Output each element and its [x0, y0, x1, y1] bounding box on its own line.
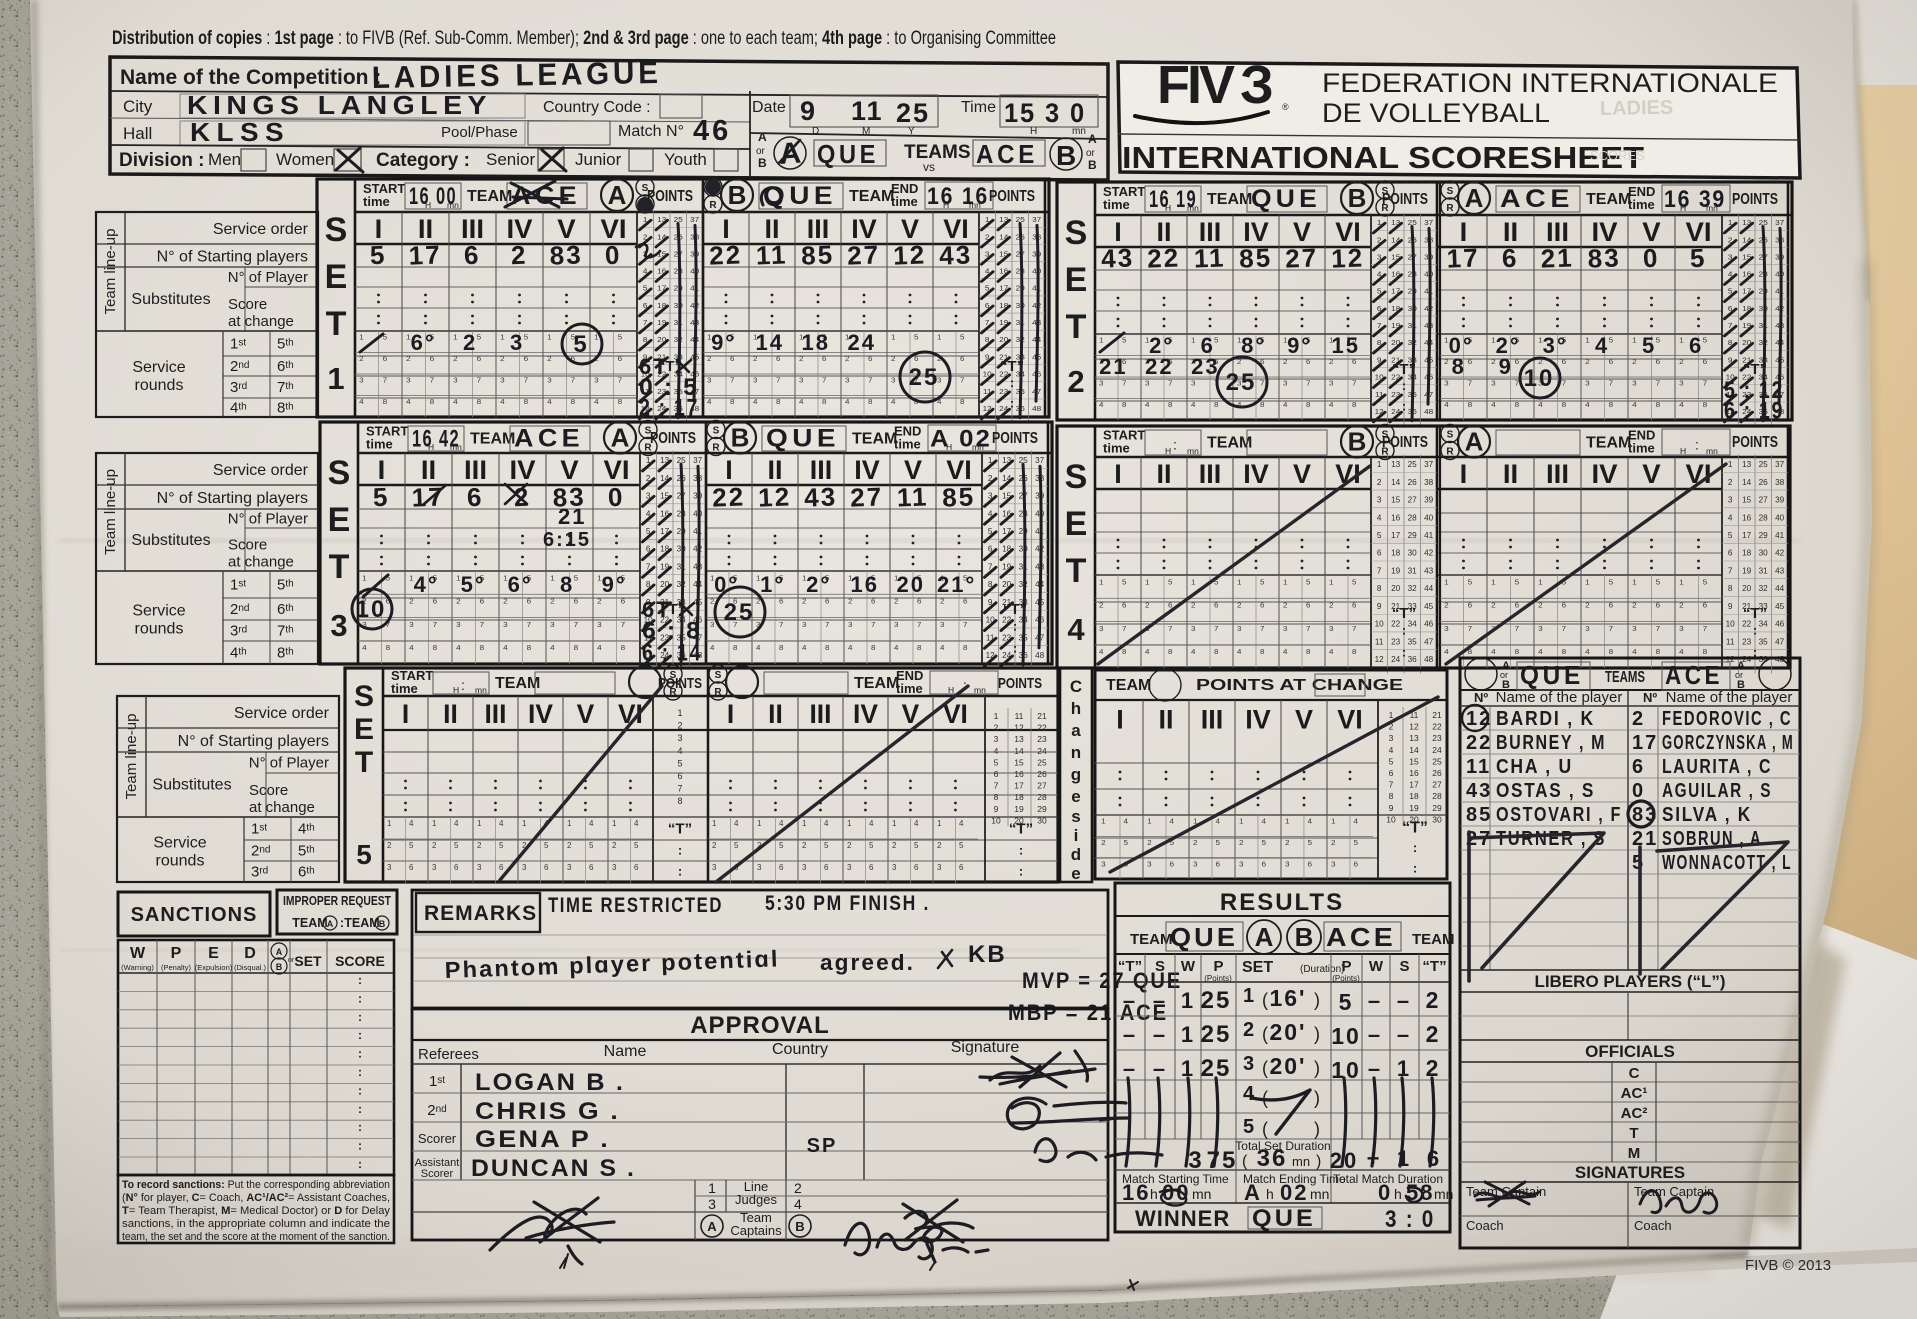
svg-text::: :: [678, 843, 682, 858]
svg-text:“T”: “T”: [1118, 958, 1142, 975]
svg-text:10: 10: [1331, 1057, 1361, 1083]
svg-text:2: 2: [794, 1180, 802, 1196]
svg-text:QUE: QUE: [817, 139, 879, 169]
svg-text:N° of Starting players: N° of Starting players: [157, 249, 308, 266]
svg-text:10: 10: [1331, 1023, 1361, 1049]
svg-text:SCORES: SCORES: [1590, 148, 1645, 163]
svg-text:7: 7: [677, 784, 682, 794]
svg-text:6: 6: [1501, 243, 1519, 274]
svg-text:Service order: Service order: [213, 462, 309, 479]
svg-text:A: A: [327, 919, 334, 929]
svg-text:®: ®: [1282, 102, 1289, 112]
svg-text:–: –: [1397, 988, 1411, 1013]
svg-text:3: 3: [510, 330, 524, 355]
svg-text:–: –: [1397, 1022, 1411, 1047]
svg-text:43: 43: [1101, 242, 1135, 273]
svg-text:85: 85: [942, 481, 976, 512]
svg-text:Women: Women: [276, 150, 334, 169]
svg-text:R: R: [712, 443, 720, 454]
svg-text::: :: [678, 864, 682, 879]
svg-text:RESULTS: RESULTS: [1220, 889, 1344, 916]
svg-text:(Disqual.): (Disqual.): [234, 963, 267, 972]
svg-text:H: H: [1165, 446, 1171, 456]
svg-text:SCORE: SCORE: [335, 953, 385, 969]
svg-text:20': 20': [1269, 1019, 1306, 1045]
svg-text:TEAM: TEAM: [852, 431, 897, 448]
svg-text:mn: mn: [1706, 446, 1718, 456]
svg-text:8: 8: [560, 572, 574, 597]
svg-text:1: 1: [1397, 1146, 1411, 1171]
svg-text:Judges: Judges: [735, 1192, 777, 1207]
svg-text:3: 3: [708, 1196, 716, 1212]
svg-text:–: –: [1123, 1022, 1137, 1047]
svg-text:0°: 0°: [714, 572, 739, 597]
svg-text:d: d: [1071, 845, 1081, 864]
svg-text:24: 24: [847, 330, 875, 355]
svg-text:“T”: “T”: [1743, 361, 1767, 378]
svg-text:4°: 4°: [414, 572, 439, 597]
svg-text:12: 12: [758, 481, 792, 512]
svg-text:–: –: [1368, 1022, 1382, 1047]
svg-text:Service: Service: [132, 603, 185, 620]
svg-text:2°: 2°: [806, 572, 831, 597]
svg-text:AC¹: AC¹: [1621, 1085, 1648, 1102]
svg-text:Signature: Signature: [951, 1039, 1020, 1056]
svg-text:25: 25: [909, 364, 940, 391]
svg-text:C: C: [1070, 677, 1082, 696]
svg-text::: :: [1402, 645, 1406, 660]
svg-text:W: W: [1369, 958, 1384, 975]
svg-text:Service: Service: [153, 835, 206, 852]
svg-text:2: 2: [677, 721, 682, 731]
svg-text:FEDERATION INTERNATIONALE: FEDERATION INTERNATIONALE: [1322, 68, 1778, 98]
svg-text:D: D: [244, 945, 256, 962]
svg-text:3°: 3°: [1543, 333, 1568, 358]
svg-text:17: 17: [408, 239, 442, 270]
svg-text:Coach: Coach: [1466, 1218, 1504, 1233]
svg-text:h: h: [1150, 1186, 1158, 1202]
svg-text::: :: [358, 1047, 362, 1061]
svg-text:S: S: [1447, 186, 1454, 197]
svg-text:T: T: [1629, 1125, 1638, 1142]
svg-text:22: 22: [1145, 354, 1173, 379]
svg-text:16 42: 16 42: [412, 426, 460, 453]
svg-text:Service order: Service order: [234, 705, 330, 722]
svg-text:Nº: Nº: [1474, 690, 1488, 705]
svg-text:n: n: [1071, 743, 1081, 762]
svg-text:2: 2: [1243, 1019, 1256, 1041]
svg-text:“T”: “T”: [1402, 820, 1428, 837]
svg-text:QUE: QUE: [1252, 1205, 1316, 1232]
svg-text:2: 2: [1067, 364, 1084, 399]
svg-text:20: 20: [1330, 1148, 1358, 1173]
svg-text:1°: 1°: [760, 572, 785, 597]
svg-text:S: S: [325, 211, 348, 249]
svg-text:WINNER: WINNER: [1135, 1206, 1230, 1231]
svg-text:g: g: [1071, 765, 1081, 784]
svg-text:R: R: [714, 687, 722, 698]
svg-text:21: 21: [1099, 354, 1127, 379]
svg-text:+: +: [1367, 1146, 1382, 1171]
svg-text:27: 27: [1285, 242, 1319, 273]
svg-text:(Expulsion): (Expulsion): [195, 963, 233, 972]
svg-text:mn: mn: [1192, 1186, 1211, 1202]
svg-text:E: E: [1065, 261, 1088, 299]
svg-text:APPROVAL: APPROVAL: [690, 1012, 830, 1039]
svg-text:h: h: [1394, 1186, 1402, 1202]
svg-text:POINTS: POINTS: [1732, 434, 1778, 451]
svg-text:6: 6: [1427, 1146, 1441, 1171]
svg-text:TEAM: TEAM: [1207, 191, 1252, 208]
svg-text:Men: Men: [208, 150, 241, 169]
svg-text:17: 17: [1632, 732, 1658, 754]
svg-text:S: S: [1065, 458, 1088, 496]
svg-text:6T: 6T: [639, 354, 669, 379]
svg-text:A: A: [1255, 922, 1274, 952]
svg-text:W: W: [130, 945, 146, 962]
svg-text:–: –: [1153, 1022, 1167, 1047]
svg-text:LAURITA , C: LAURITA , C: [1662, 756, 1772, 778]
svg-text:11: 11: [755, 239, 788, 270]
svg-text:B: B: [1348, 427, 1367, 457]
svg-text:6 : 14: 6 : 14: [642, 640, 702, 667]
svg-text:Substitutes: Substitutes: [131, 532, 210, 549]
svg-text:A: A: [276, 947, 283, 957]
svg-text:mn: mn: [475, 685, 487, 695]
svg-text:TEAMS: TEAMS: [904, 142, 971, 163]
svg-text:QUE: QUE: [766, 425, 840, 453]
svg-text:11: 11: [1466, 756, 1491, 778]
svg-text:team, the set and the score at: team, the set and the score at the momen…: [122, 1231, 390, 1243]
svg-text:A: A: [758, 130, 767, 144]
svg-text:Score: Score: [228, 296, 267, 313]
svg-text:Team line-up: Team line-up: [102, 469, 119, 555]
svg-text:S: S: [1399, 958, 1409, 975]
svg-text:TEAM: TEAM: [1586, 435, 1631, 452]
svg-text::: :: [461, 677, 465, 693]
svg-text:5: 5: [1339, 989, 1354, 1015]
svg-text:IMPROPER REQUEST: IMPROPER REQUEST: [283, 894, 391, 908]
svg-text:TEAM: TEAM: [1106, 677, 1151, 694]
svg-text:B: B: [276, 962, 283, 972]
svg-text::: :: [1019, 864, 1023, 879]
svg-text:1: 1: [1397, 1056, 1411, 1081]
svg-text:h: h: [1266, 1186, 1274, 1202]
svg-text:21: 21: [1632, 828, 1658, 850]
svg-text:1: 1: [1181, 1022, 1195, 1047]
svg-text:): ): [1314, 1058, 1320, 1078]
svg-text:0: 0: [1378, 1180, 1392, 1205]
svg-text:2: 2: [513, 482, 531, 513]
svg-text:Referees: Referees: [418, 1046, 479, 1063]
svg-text:agreed.: agreed.: [820, 950, 915, 975]
svg-text:16: 16: [850, 572, 878, 597]
svg-text:Name of the player: Name of the player: [1496, 689, 1623, 706]
svg-text:5°: 5°: [461, 572, 486, 597]
svg-text:SET: SET: [1242, 959, 1273, 976]
svg-text:FIV: FIV: [1157, 55, 1235, 115]
svg-text:): ): [1314, 1088, 1320, 1108]
svg-text:0: 0: [1642, 243, 1660, 274]
svg-text:(: (: [1262, 1119, 1268, 1139]
svg-text:h: h: [1071, 699, 1081, 718]
svg-text:9: 9: [800, 96, 817, 126]
svg-text:5: 5: [1642, 333, 1656, 358]
svg-text:–: –: [1123, 988, 1137, 1013]
svg-text:): ): [1314, 1024, 1320, 1044]
svg-text:25: 25: [896, 98, 930, 128]
svg-text:20: 20: [896, 572, 924, 597]
svg-text:To record sanctions: Put the c: To record sanctions: Put the correspondi…: [122, 1179, 390, 1191]
svg-text::: :: [1402, 378, 1406, 393]
svg-text:25: 25: [1226, 369, 1257, 396]
svg-text:AGUILAR , S: AGUILAR , S: [1662, 780, 1772, 802]
svg-text:1: 1: [1243, 985, 1256, 1007]
svg-text:25: 25: [724, 599, 755, 626]
svg-text::: :: [1019, 843, 1023, 858]
svg-text:DUNCAN S .: DUNCAN S .: [471, 1155, 636, 1182]
svg-text:LADIES LEAGUE: LADIES LEAGUE: [372, 55, 663, 95]
svg-text:Service order: Service order: [213, 221, 309, 238]
svg-text:2: 2: [1426, 987, 1441, 1013]
svg-text:1: 1: [327, 361, 344, 396]
svg-text:5: 5: [369, 240, 387, 271]
svg-text:A: A: [611, 423, 630, 453]
svg-text:23: 23: [1191, 354, 1219, 379]
svg-text:a: a: [1071, 721, 1081, 740]
svg-text::: :: [358, 1102, 362, 1116]
svg-text:KINGS LANGLEY: KINGS LANGLEY: [187, 90, 492, 120]
svg-text:POINTS: POINTS: [1382, 191, 1428, 208]
svg-text:25: 25: [1201, 987, 1232, 1014]
svg-text:B: B: [1088, 158, 1097, 172]
svg-text:4: 4: [1243, 1083, 1256, 1105]
svg-text:CHA , U: CHA , U: [1496, 756, 1573, 778]
svg-text:22: 22: [1147, 242, 1181, 273]
svg-text::: :: [1402, 399, 1406, 414]
svg-text:T: T: [326, 305, 347, 343]
svg-text:mn: mn: [1310, 1186, 1329, 1202]
svg-text::: :: [358, 1139, 362, 1153]
svg-text::: :: [358, 1157, 362, 1171]
svg-text:8: 8: [677, 796, 682, 806]
svg-text:W: W: [1181, 958, 1196, 975]
svg-text:15 3 0: 15 3 0: [1004, 98, 1086, 128]
svg-text:E: E: [354, 713, 374, 746]
svg-text:rounds: rounds: [156, 853, 205, 870]
svg-text:i: i: [1074, 826, 1079, 845]
svg-text:A: A: [608, 180, 627, 210]
svg-text:(: (: [1262, 1024, 1268, 1044]
svg-text::: :: [1013, 619, 1017, 634]
svg-text:N° of Player: N° of Player: [228, 511, 308, 528]
svg-text:POINTS: POINTS: [650, 430, 696, 447]
svg-text:5: 5: [356, 839, 372, 870]
svg-text:B: B: [795, 1219, 804, 1234]
svg-text:6: 6: [1632, 756, 1645, 778]
svg-text:Distribution of copies : 1st p: Distribution of copies : 1st page : to F…: [112, 28, 1056, 49]
svg-text:POINTS: POINTS: [998, 675, 1042, 692]
svg-text:22: 22: [709, 239, 743, 270]
svg-text:LIBERO PLAYERS (“L”): LIBERO PLAYERS (“L”): [1534, 972, 1725, 991]
svg-text:5: 5: [573, 331, 588, 358]
svg-text:4: 4: [677, 746, 682, 756]
svg-text:A: A: [1088, 132, 1097, 146]
svg-text::: :: [358, 991, 362, 1005]
svg-text:11: 11: [851, 96, 884, 126]
svg-text:B: B: [1056, 140, 1078, 171]
svg-text:17: 17: [1446, 242, 1480, 273]
svg-text:21: 21: [558, 504, 586, 529]
svg-text:TEAM: TEAM: [495, 675, 540, 692]
svg-text:mn: mn: [974, 685, 986, 695]
svg-text:P: P: [1213, 958, 1223, 975]
svg-text:AC²: AC²: [1621, 1105, 1648, 1122]
svg-text:mn: mn: [1292, 1154, 1310, 1169]
svg-text:B: B: [731, 423, 750, 453]
svg-text:18: 18: [801, 330, 829, 355]
svg-text:T: T: [1066, 552, 1087, 590]
svg-text:S: S: [1065, 214, 1088, 252]
svg-text:“T”: “T”: [1422, 958, 1446, 975]
svg-text:OSTOVARI , F: OSTOVARI , F: [1496, 804, 1622, 826]
svg-text:SILVA , K: SILVA , K: [1662, 804, 1752, 826]
svg-text:9°: 9°: [1287, 333, 1312, 358]
svg-text:FEDOROVIC , C: FEDOROVIC , C: [1662, 708, 1792, 730]
svg-text:P: P: [171, 945, 182, 962]
svg-text:KLSS: KLSS: [190, 117, 290, 147]
svg-text:85: 85: [1466, 804, 1492, 826]
svg-text:16 16: 16 16: [927, 183, 989, 210]
svg-text:A 02: A 02: [930, 426, 992, 453]
svg-text:time: time: [894, 437, 921, 452]
svg-text:15: 15: [1331, 333, 1359, 358]
svg-text::: :: [1413, 840, 1417, 855]
svg-text:Nº: Nº: [1643, 690, 1657, 705]
svg-text:85: 85: [1239, 242, 1273, 273]
svg-text:20': 20': [1269, 1053, 1306, 1079]
svg-text:H: H: [1030, 126, 1037, 137]
svg-text:S: S: [1155, 958, 1165, 975]
svg-text:TEAM: TEAM: [1207, 435, 1252, 452]
svg-text:GORCZYNSKA , M: GORCZYNSKA , M: [1662, 732, 1794, 754]
svg-text:4: 4: [1067, 612, 1085, 647]
svg-text:Time: Time: [961, 99, 996, 116]
svg-text:TEAM: TEAM: [1586, 191, 1631, 208]
svg-text:Senior: Senior: [486, 150, 535, 169]
svg-text:N° of Player: N° of Player: [228, 269, 308, 286]
svg-text:“T”: “T”: [1009, 821, 1033, 838]
svg-text:Junior: Junior: [575, 150, 622, 169]
svg-text:LOGAN B .: LOGAN B .: [475, 1069, 625, 1096]
svg-text:A: A: [1244, 1180, 1262, 1205]
svg-text:BURNEY , M: BURNEY , M: [1496, 732, 1606, 754]
svg-text:MBP = 21 ACE: MBP = 21 ACE: [1008, 1000, 1168, 1025]
svg-text:SANCTIONS: SANCTIONS: [131, 904, 258, 926]
svg-text:R: R: [1446, 447, 1454, 458]
svg-text:3: 3: [330, 608, 347, 643]
svg-text::: :: [358, 1010, 362, 1024]
svg-text:27: 27: [850, 481, 884, 512]
svg-text:1: 1: [1181, 988, 1195, 1013]
svg-text:BARDI , K: BARDI , K: [1496, 708, 1595, 730]
svg-text:): ): [1316, 1153, 1321, 1170]
svg-text:S: S: [1447, 430, 1454, 441]
svg-text:Team line-up: Team line-up: [123, 714, 140, 800]
svg-text::: :: [1695, 437, 1699, 453]
svg-text:B: B: [379, 919, 386, 929]
svg-text::: :: [1402, 623, 1406, 638]
svg-text:–: –: [1153, 1056, 1167, 1081]
svg-text:KB: KB: [968, 941, 1007, 968]
svg-text:B: B: [758, 156, 767, 170]
svg-text:6 : 19: 6 : 19: [1724, 398, 1784, 425]
svg-text:Substitutes: Substitutes: [152, 777, 231, 794]
svg-text:TEAM: TEAM: [470, 431, 515, 448]
svg-text:2: 2: [510, 240, 528, 271]
svg-text:SET: SET: [294, 953, 322, 969]
svg-text:6T: 6T: [642, 597, 672, 622]
svg-text:): ): [1314, 1119, 1320, 1139]
svg-text:“T”: “T”: [1392, 605, 1416, 622]
svg-text:9°: 9°: [602, 572, 627, 597]
svg-text:3 : 0: 3 : 0: [1385, 1206, 1435, 1233]
svg-text:2 : 17: 2 : 17: [639, 395, 699, 422]
svg-text:mn: mn: [1072, 126, 1086, 137]
svg-text:QUE: QUE: [1251, 185, 1321, 213]
svg-text:DE VOLLEYBALL: DE VOLLEYBALL: [1322, 98, 1550, 128]
svg-text:83: 83: [1587, 242, 1621, 273]
svg-text:12: 12: [1331, 242, 1365, 273]
svg-text:Name of the Competition :: Name of the Competition :: [120, 66, 381, 89]
svg-text:): ): [1314, 990, 1320, 1010]
svg-text:GENA P .: GENA P .: [475, 1126, 610, 1153]
svg-text:22: 22: [1466, 732, 1492, 754]
svg-text:(: (: [1242, 1153, 1248, 1170]
svg-text:CHRIS G .: CHRIS G .: [475, 1098, 620, 1125]
svg-text:S: S: [354, 680, 374, 713]
svg-text:Youth: Youth: [664, 150, 707, 169]
svg-text:at change: at change: [249, 799, 315, 816]
svg-text:Service: Service: [132, 359, 185, 376]
svg-text:02: 02: [1280, 1180, 1308, 1205]
svg-text:SP: SP: [807, 1135, 838, 1157]
svg-text::: :: [1413, 861, 1417, 876]
svg-text:ACE: ACE: [1500, 185, 1574, 213]
svg-text:time: time: [391, 681, 418, 696]
svg-text:ACE: ACE: [1326, 922, 1396, 952]
svg-text:TIME RESTRICTED: TIME RESTRICTED: [548, 894, 723, 917]
svg-text:FIVB © 2013: FIVB © 2013: [1745, 1257, 1831, 1274]
svg-text:(Duration): (Duration): [1300, 964, 1344, 975]
svg-text:T: T: [329, 548, 350, 586]
svg-text:SIGNATURES: SIGNATURES: [1575, 1163, 1685, 1182]
svg-text::: :: [358, 1083, 362, 1097]
svg-text:time: time: [896, 681, 923, 696]
svg-text:TEAM: TEAM: [467, 188, 512, 205]
svg-text::: :: [358, 973, 362, 987]
svg-text:6: 6: [1689, 333, 1703, 358]
svg-text:36: 36: [1257, 1145, 1288, 1172]
svg-text:6: 6: [466, 482, 484, 513]
svg-text:Country: Country: [772, 1041, 828, 1058]
svg-text:time: time: [1103, 197, 1130, 212]
svg-text::: :: [358, 1120, 362, 1134]
svg-text:TEAMS: TEAMS: [1605, 669, 1645, 686]
svg-text:rounds: rounds: [135, 621, 184, 638]
svg-text:16: 16: [1122, 1180, 1150, 1205]
svg-text:6:15: 6:15: [543, 529, 591, 551]
